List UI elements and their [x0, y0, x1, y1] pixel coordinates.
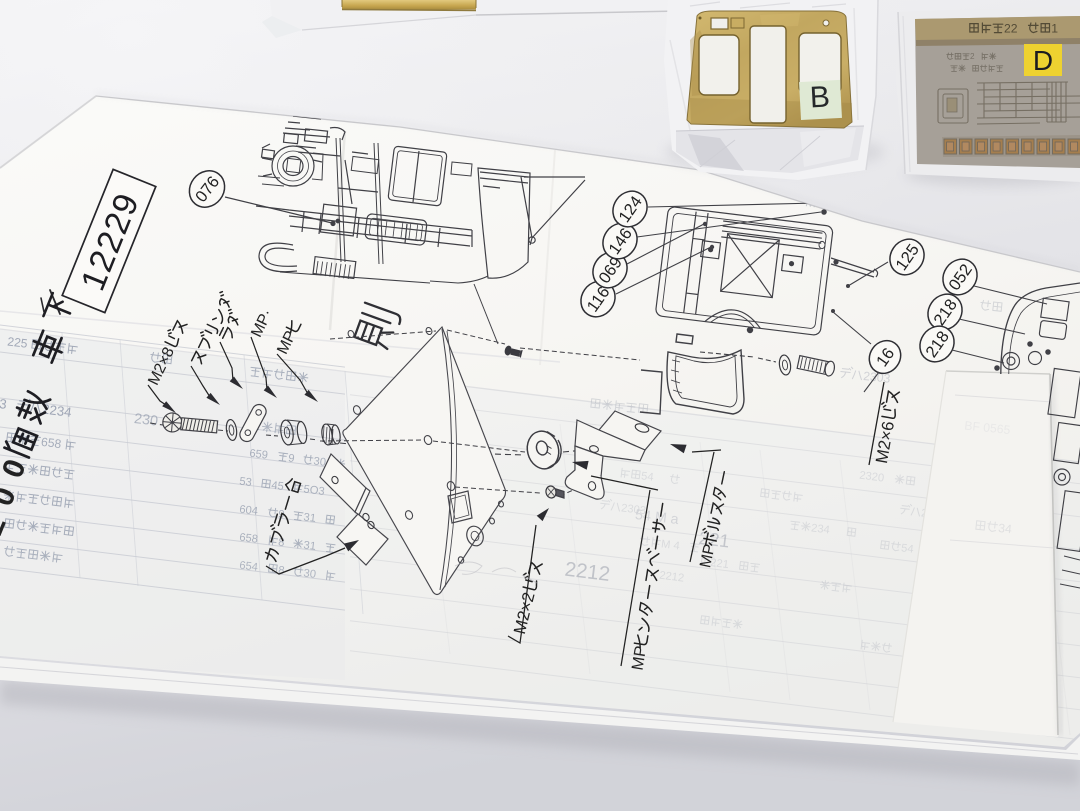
svg-text:604: 604: [239, 504, 259, 518]
svg-text:34: 34: [998, 521, 1013, 536]
svg-text:2: 2: [970, 52, 975, 61]
svg-text:225: 225: [6, 334, 28, 350]
svg-text:MP: MP: [629, 645, 651, 672]
svg-text:54: 54: [640, 470, 654, 483]
svg-text:M 4: M 4: [660, 538, 680, 552]
svg-text:31: 31: [303, 511, 317, 524]
svg-text:31: 31: [303, 539, 317, 552]
svg-text:D: D: [1033, 45, 1053, 76]
svg-text:53: 53: [239, 476, 253, 489]
svg-text:654: 654: [239, 560, 259, 574]
svg-text:45: 45: [271, 480, 285, 493]
svg-text:658: 658: [40, 435, 62, 451]
svg-text:234: 234: [810, 522, 830, 536]
svg-text:659: 659: [249, 448, 269, 462]
svg-text:1: 1: [1051, 21, 1058, 35]
svg-text:B: B: [809, 81, 831, 115]
svg-text:30: 30: [303, 567, 317, 580]
svg-text:230: 230: [133, 411, 159, 430]
svg-text:5O3: 5O3: [303, 483, 325, 497]
svg-text:658: 658: [239, 532, 259, 546]
svg-text:54: 54: [900, 542, 914, 555]
svg-text:22: 22: [1004, 21, 1018, 35]
